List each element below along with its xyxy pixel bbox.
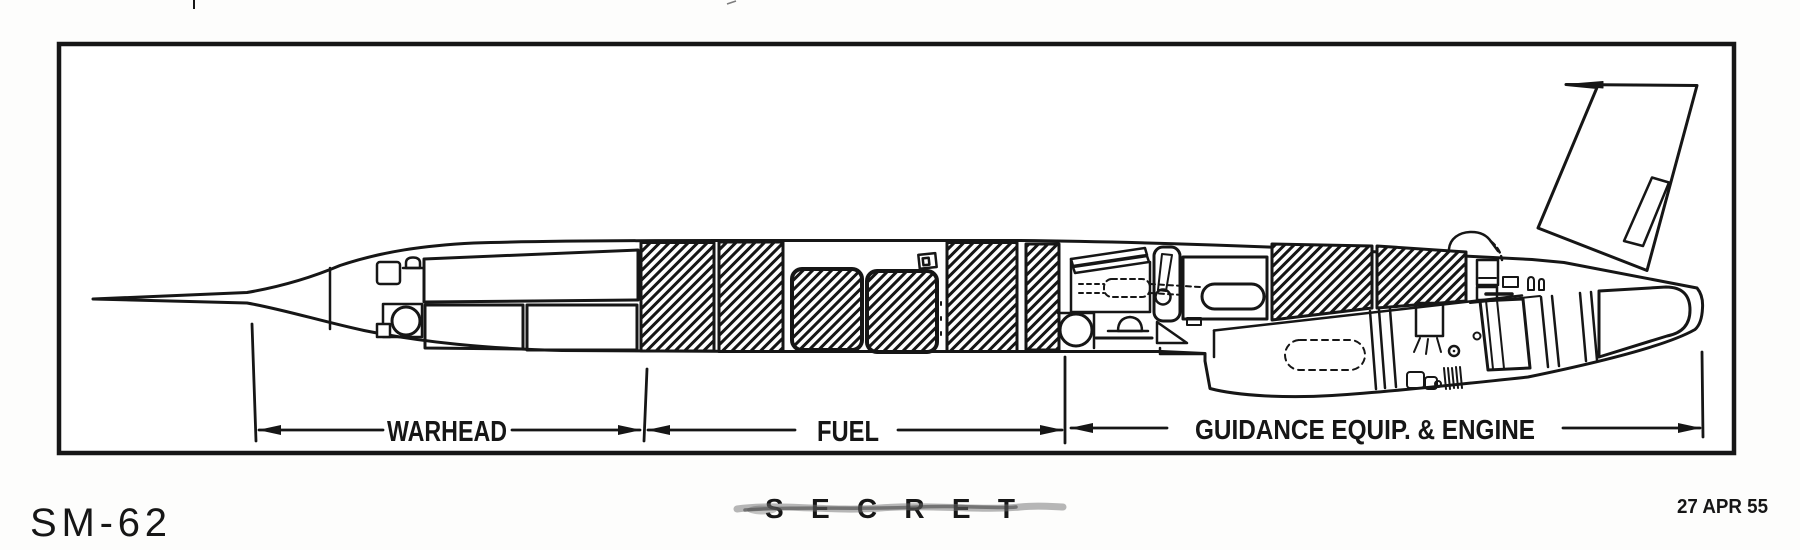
document-page: WARHEAD FUEL GUIDANCE EQUIP. & ENGINE SM… (0, 0, 1800, 550)
filler-vent-box (918, 253, 936, 269)
fuel-section-label: FUEL (817, 416, 879, 448)
warhead-section-label: WARHEAD (387, 416, 507, 448)
missile-cutaway-figure: WARHEAD FUEL GUIDANCE EQUIP. & ENGINE SM… (0, 0, 1800, 550)
aft-fuel-tank (1272, 244, 1372, 320)
stray-scratch-mark (727, 1, 736, 4)
small-equipment-box (377, 324, 390, 337)
fuel-tank (719, 242, 783, 352)
fuel-tank (1026, 244, 1059, 350)
aft-fuel-tank (1377, 246, 1466, 308)
fuel-tank (641, 243, 714, 352)
dimension-leader (1702, 352, 1703, 437)
figure-designation: SM-62 (30, 501, 167, 545)
fuel-cell-rounded (867, 271, 937, 352)
guidance-section-label: GUIDANCE EQUIP. & ENGINE (1195, 414, 1535, 445)
fuel-tank (947, 243, 1017, 352)
fuel-cell-rounded (792, 269, 862, 350)
date-stamp: 27 APR 55 (1677, 496, 1768, 518)
